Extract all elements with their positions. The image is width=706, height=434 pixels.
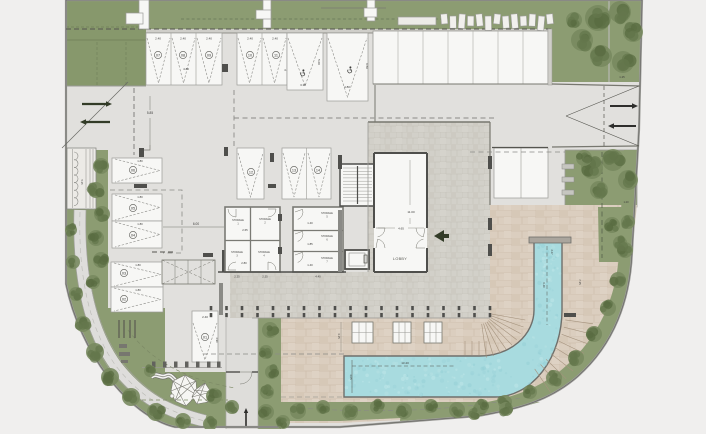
svg-text:07: 07 bbox=[156, 53, 160, 57]
svg-text:4.05: 4.05 bbox=[349, 374, 353, 380]
svg-text:2.40: 2.40 bbox=[155, 37, 161, 41]
svg-text:11: 11 bbox=[274, 53, 278, 57]
svg-text:2.65: 2.65 bbox=[242, 228, 248, 232]
svg-text:4.90: 4.90 bbox=[215, 337, 219, 343]
svg-text:5.85: 5.85 bbox=[147, 111, 153, 115]
svg-text:6.00: 6.00 bbox=[193, 222, 199, 226]
svg-text:2.25: 2.25 bbox=[262, 275, 268, 279]
svg-text:4.65: 4.65 bbox=[398, 227, 404, 231]
svg-text:05: 05 bbox=[131, 206, 135, 210]
svg-text:3.30: 3.30 bbox=[300, 83, 306, 87]
svg-text:3.15: 3.15 bbox=[337, 333, 341, 339]
svg-text:4.80: 4.80 bbox=[183, 67, 189, 71]
svg-text:1.25: 1.25 bbox=[619, 75, 625, 79]
svg-text:11.00: 11.00 bbox=[407, 210, 415, 214]
svg-text:LOBBY: LOBBY bbox=[393, 257, 407, 261]
svg-text:4.40: 4.40 bbox=[315, 275, 321, 279]
svg-text:5.35: 5.35 bbox=[80, 179, 84, 185]
svg-text:2.40: 2.40 bbox=[180, 37, 186, 41]
svg-text:1.85: 1.85 bbox=[307, 242, 313, 246]
svg-text:09: 09 bbox=[207, 53, 211, 57]
svg-text:02: 02 bbox=[122, 297, 126, 301]
svg-text:1.80: 1.80 bbox=[135, 288, 141, 292]
svg-text:1.80: 1.80 bbox=[135, 263, 141, 267]
svg-text:13.40: 13.40 bbox=[401, 361, 409, 365]
svg-text:1.80: 1.80 bbox=[137, 195, 143, 199]
svg-text:7.35: 7.35 bbox=[578, 279, 582, 285]
svg-text:2.40: 2.40 bbox=[206, 37, 212, 41]
svg-text:03: 03 bbox=[122, 271, 126, 275]
svg-text:6.40: 6.40 bbox=[542, 282, 546, 288]
svg-text:6.50: 6.50 bbox=[365, 63, 369, 69]
svg-text:1.40: 1.40 bbox=[307, 221, 313, 225]
svg-text:1.20: 1.20 bbox=[623, 200, 629, 204]
svg-text:06: 06 bbox=[131, 168, 135, 172]
svg-text:2.27: 2.27 bbox=[550, 249, 554, 255]
svg-text:2.40: 2.40 bbox=[202, 315, 208, 319]
svg-text:2.40: 2.40 bbox=[272, 37, 278, 41]
svg-text:12: 12 bbox=[249, 170, 253, 174]
svg-text:14: 14 bbox=[316, 168, 320, 172]
svg-text:01: 01 bbox=[203, 335, 207, 339]
svg-text:2.40: 2.40 bbox=[247, 37, 253, 41]
svg-text:5.00: 5.00 bbox=[317, 59, 321, 65]
svg-text:1.80: 1.80 bbox=[137, 159, 143, 163]
svg-text:10: 10 bbox=[248, 53, 252, 57]
svg-text:04: 04 bbox=[131, 233, 135, 237]
svg-text:1.80: 1.80 bbox=[137, 222, 143, 226]
svg-text:1.40: 1.40 bbox=[307, 263, 313, 267]
svg-text:2.80: 2.80 bbox=[241, 261, 247, 265]
svg-text:4.80: 4.80 bbox=[344, 85, 350, 89]
svg-text:08: 08 bbox=[181, 53, 185, 57]
svg-text:2.25: 2.25 bbox=[234, 275, 240, 279]
svg-text:13: 13 bbox=[292, 168, 296, 172]
